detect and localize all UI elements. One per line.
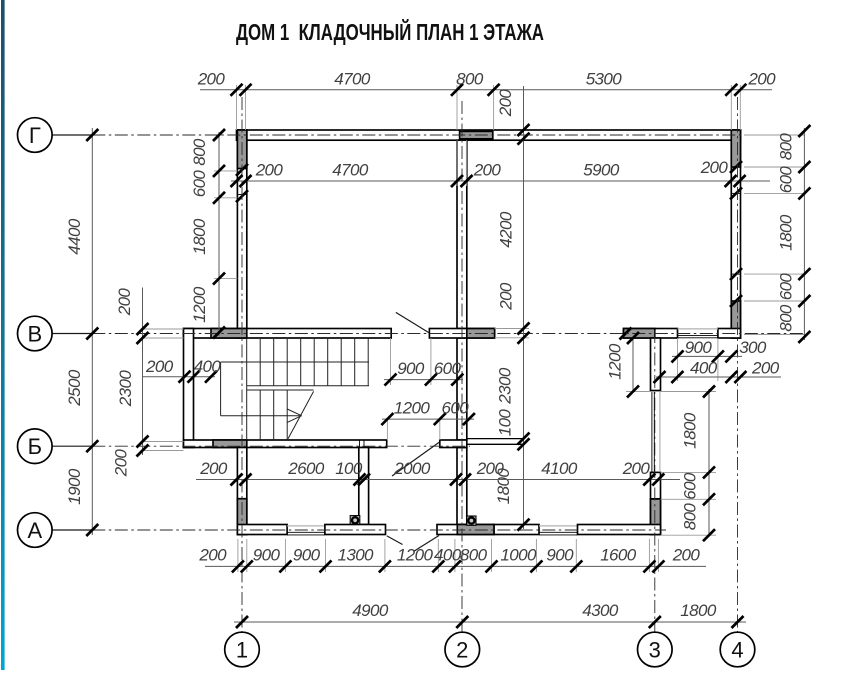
svg-text:800: 800	[190, 138, 209, 166]
svg-text:1300: 1300	[337, 546, 374, 565]
svg-text:100: 100	[335, 459, 363, 478]
svg-text:800: 800	[460, 546, 488, 565]
svg-text:600: 600	[777, 273, 796, 301]
svg-text:200: 200	[198, 546, 227, 565]
svg-text:200: 200	[622, 459, 651, 478]
svg-text:800: 800	[456, 69, 484, 88]
svg-text:200: 200	[115, 288, 134, 317]
svg-text:ДОМ 1 КЛАДОЧНЫЙ ПЛАН 1 ЭТАЖА: ДОМ 1 КЛАДОЧНЫЙ ПЛАН 1 ЭТАЖА	[236, 18, 544, 45]
svg-text:1200: 1200	[190, 286, 209, 323]
svg-text:600: 600	[434, 359, 462, 378]
svg-text:900: 900	[397, 359, 425, 378]
svg-text:1800: 1800	[190, 218, 209, 255]
svg-text:200: 200	[497, 282, 516, 311]
svg-text:200: 200	[255, 161, 284, 180]
svg-text:200: 200	[199, 459, 228, 478]
svg-text:600: 600	[681, 472, 700, 500]
svg-text:1200: 1200	[397, 546, 434, 565]
svg-text:1000: 1000	[500, 546, 537, 565]
svg-text:200: 200	[672, 546, 701, 565]
svg-text:200: 200	[751, 359, 780, 378]
svg-text:200: 200	[197, 69, 226, 88]
svg-text:200: 200	[476, 459, 505, 478]
svg-text:Г: Г	[29, 123, 41, 148]
svg-text:1900: 1900	[65, 468, 84, 505]
svg-text:600: 600	[777, 166, 796, 194]
svg-text:Б: Б	[28, 434, 42, 459]
svg-text:600: 600	[442, 399, 470, 418]
svg-text:800: 800	[777, 304, 796, 332]
svg-text:1800: 1800	[681, 412, 700, 449]
svg-text:5900: 5900	[583, 161, 620, 180]
svg-text:900: 900	[293, 546, 321, 565]
svg-text:4700: 4700	[332, 161, 369, 180]
svg-text:4400: 4400	[65, 218, 84, 255]
svg-text:100: 100	[496, 409, 515, 437]
svg-text:3: 3	[649, 637, 661, 662]
svg-text:1800: 1800	[680, 601, 717, 620]
svg-text:900: 900	[253, 546, 281, 565]
svg-text:200: 200	[700, 158, 729, 177]
svg-text:4100: 4100	[541, 459, 578, 478]
svg-text:200: 200	[747, 69, 776, 88]
svg-text:2600: 2600	[287, 459, 325, 478]
svg-text:4700: 4700	[334, 69, 371, 88]
svg-text:600: 600	[190, 170, 209, 198]
svg-text:1600: 1600	[600, 546, 637, 565]
svg-text:900: 900	[546, 546, 574, 565]
svg-text:300: 300	[739, 338, 767, 357]
svg-text:2000: 2000	[393, 459, 431, 478]
svg-text:4300: 4300	[582, 601, 619, 620]
svg-text:4200: 4200	[497, 211, 516, 248]
svg-text:400: 400	[690, 359, 718, 378]
svg-text:1: 1	[236, 637, 248, 662]
svg-text:2300: 2300	[496, 367, 515, 405]
svg-text:1200: 1200	[394, 399, 431, 418]
svg-text:В: В	[27, 321, 42, 346]
svg-text:400: 400	[194, 357, 222, 376]
svg-text:200: 200	[112, 449, 131, 478]
svg-text:400: 400	[434, 546, 462, 565]
svg-text:900: 900	[685, 338, 713, 357]
svg-text:2300: 2300	[116, 370, 135, 408]
svg-text:1200: 1200	[606, 343, 625, 380]
svg-text:200: 200	[496, 89, 515, 118]
svg-text:4900: 4900	[352, 601, 389, 620]
svg-text:800: 800	[777, 133, 796, 161]
svg-text:1800: 1800	[777, 214, 796, 251]
svg-text:5300: 5300	[586, 69, 623, 88]
svg-text:200: 200	[473, 161, 502, 180]
svg-text:А: А	[27, 518, 42, 543]
svg-text:2: 2	[456, 637, 468, 662]
svg-text:800: 800	[681, 503, 700, 531]
svg-text:200: 200	[145, 357, 174, 376]
svg-text:4: 4	[731, 637, 743, 662]
svg-text:2500: 2500	[65, 369, 84, 407]
